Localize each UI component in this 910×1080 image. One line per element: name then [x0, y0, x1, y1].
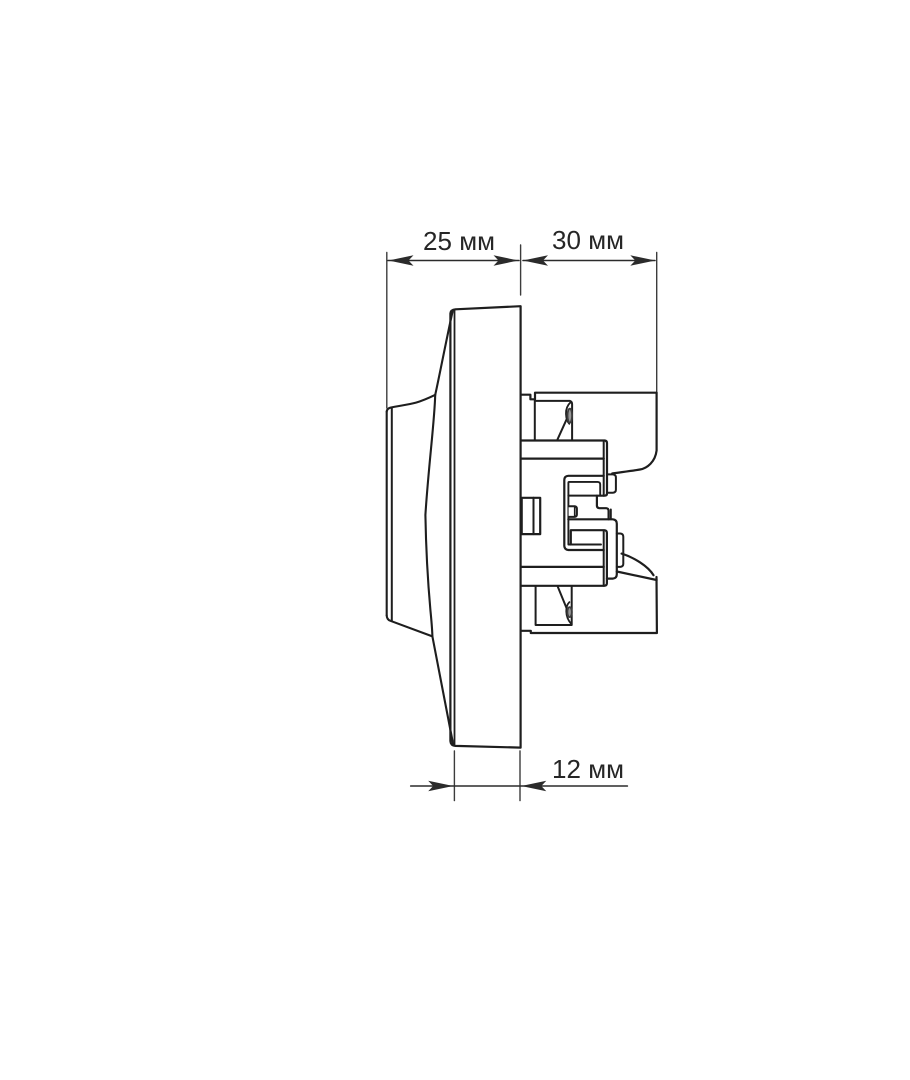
svg-text:12 мм: 12 мм: [552, 754, 624, 784]
svg-text:30 мм: 30 мм: [552, 225, 624, 255]
svg-text:25 мм: 25 мм: [423, 226, 495, 256]
